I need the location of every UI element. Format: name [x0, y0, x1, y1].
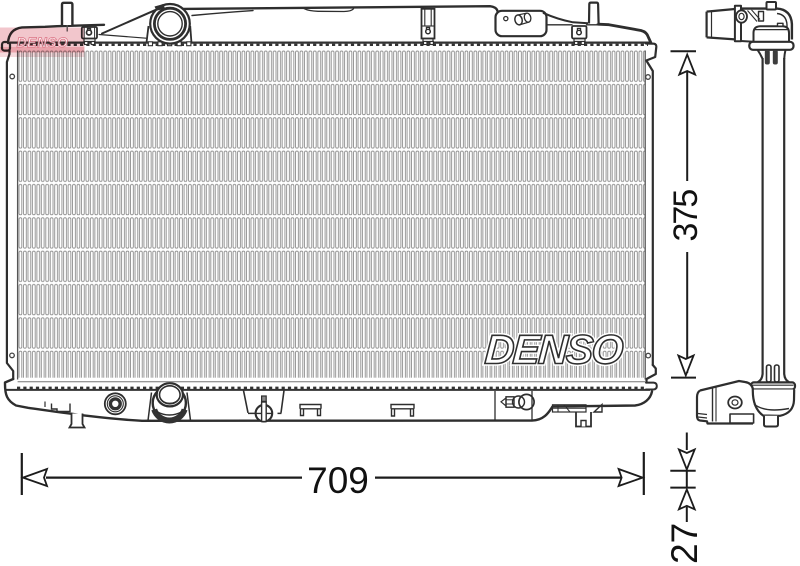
- svg-text:709: 709: [307, 460, 369, 501]
- svg-text:375: 375: [667, 190, 705, 242]
- svg-text:DENSO: DENSO: [17, 35, 69, 50]
- svg-text:27: 27: [664, 523, 705, 564]
- svg-text:DENSO: DENSO: [484, 326, 625, 372]
